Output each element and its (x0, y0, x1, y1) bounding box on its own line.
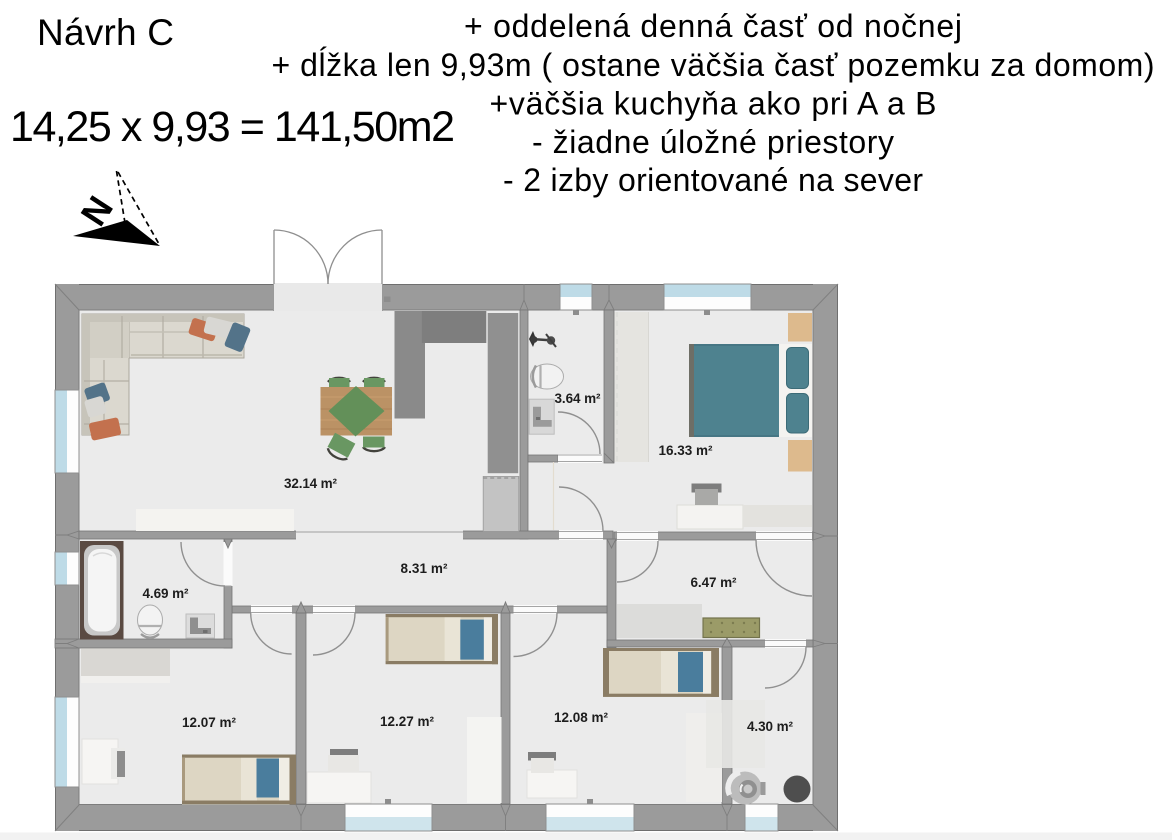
svg-text:16.33 m²: 16.33 m² (659, 443, 714, 458)
svg-text:+ oddelená denná časť od nočne: + oddelená denná časť od nočnej (464, 8, 962, 44)
svg-text:+ dĺžka len 9,93m ( ostane väč: + dĺžka len 9,93m ( ostane väčšia časť p… (272, 47, 1155, 83)
svg-text:32.14 m²: 32.14 m² (284, 476, 338, 491)
svg-text:3.64 m²: 3.64 m² (555, 391, 602, 406)
svg-text:8.31 m²: 8.31 m² (401, 561, 449, 576)
svg-text:Návrh C: Návrh C (37, 12, 174, 53)
svg-text:- 2 izby orientované na sever: - 2 izby orientované na sever (503, 162, 923, 198)
svg-text:12.07 m²: 12.07 m² (182, 715, 237, 730)
svg-text:4.30 m²: 4.30 m² (747, 719, 794, 734)
svg-text:12.27 m²: 12.27 m² (380, 714, 435, 729)
svg-text:4.69 m²: 4.69 m² (143, 586, 190, 601)
svg-text:6.47 m²: 6.47 m² (691, 575, 738, 590)
svg-text:- žiadne úložné priestory: - žiadne úložné priestory (532, 124, 894, 160)
svg-text:12.08 m²: 12.08 m² (554, 710, 609, 725)
svg-text:14,25 x 9,93 = 141,50m2: 14,25 x 9,93 = 141,50m2 (10, 103, 455, 151)
svg-text:+väčšia kuchyňa ako pri A a B: +väčšia kuchyňa ako pri A a B (490, 86, 937, 122)
